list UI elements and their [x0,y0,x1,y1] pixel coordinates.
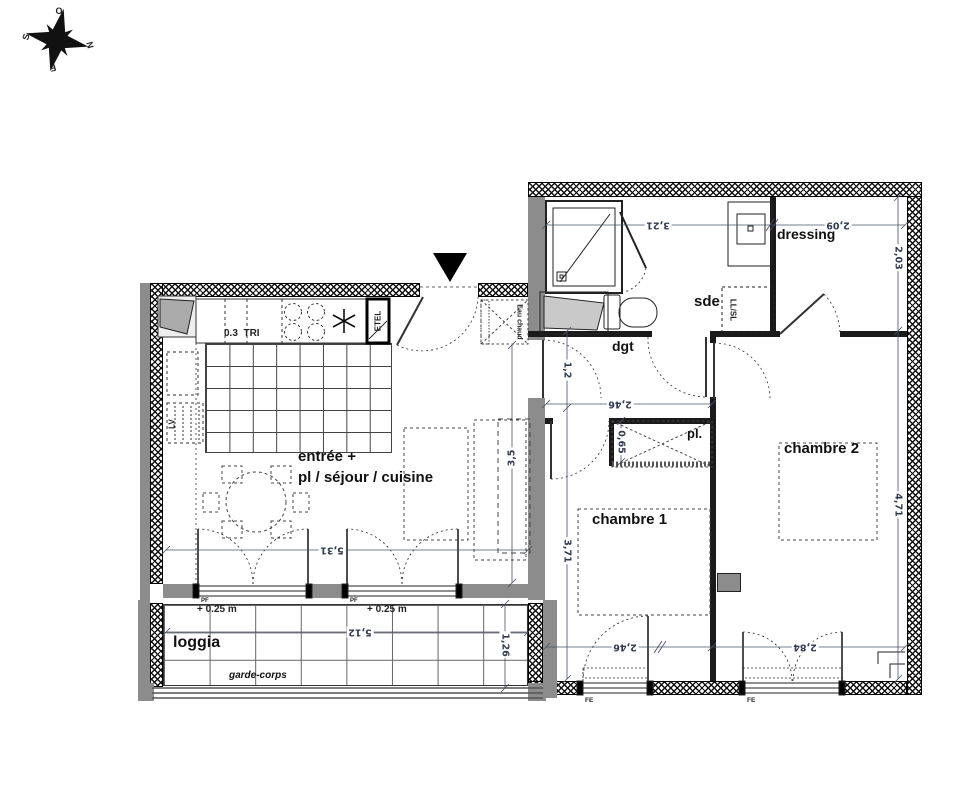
sofa-reservations [404,419,530,560]
label-pf1: PF [201,598,209,604]
dim-loggia-depth: 1,26 [500,631,511,658]
label-garde-corps: garde-corps [229,670,287,681]
kitchen-fixtures [158,296,390,584]
room-label-chambre2: chambre 2 [784,440,859,457]
label-level-b: + 0.25 m [367,604,407,615]
dim-chambre1-width: 2,46 [611,642,638,653]
dim-dgt-width: 1,2 [562,360,573,381]
dim-placard-depth: 0,65 [616,428,627,455]
dim-loggia-width: 5,12 [346,627,373,638]
label-level-a: + 0.25 m [197,604,237,615]
dim-chambre1-depth: 3,71 [562,537,573,564]
corner-step-detail [878,652,905,678]
dim-sejour-width: 5,31 [318,545,345,556]
label-fe1: FE [585,697,593,704]
dim-chambre2-depth: 4,71 [893,491,904,518]
label-lv: LV [168,419,177,429]
tri-text: TRI [243,328,259,339]
dim-chambre2-width: 2,84 [791,642,818,653]
label-tri: 0.3 TRI [224,328,260,339]
entree-line1: entrée + [298,446,433,467]
dim-sde-width: 3,21 [644,220,671,231]
room-label-sde: sde [694,293,720,310]
label-etel: ETEL [374,311,383,331]
windows [193,529,845,695]
garde-corps-railing [152,688,543,698]
label-eau-chaude: Eau chaud [516,304,523,339]
room-label-loggia: loggia [173,634,220,652]
entrance-arrow-icon [433,253,467,282]
dim-dressing-width: 2,09 [824,220,851,231]
dim-sejour-depth: 3,5 [507,448,518,469]
room-label-entree: entrée + pl / séjour / cuisine [298,446,433,488]
plan-geometry [0,0,980,800]
compass-west: O [55,6,62,16]
dining-table [203,466,309,538]
tri-value: 0.3 [224,328,238,339]
room-label-chambre1: chambre 1 [592,511,667,528]
label-llsl: LL/SL [729,299,738,321]
entree-line2: pl / séjour / cuisine [298,467,433,488]
label-pf2: PF [350,598,358,604]
dim-dressing-depth: 2,03 [893,244,904,271]
bed-reservations [578,443,877,615]
dim-chambre1-width-top: 2,46 [606,399,633,410]
room-label-placard: pl. [687,426,702,441]
label-fe2: FE [747,697,755,704]
floor-plan: O N S E entrée + pl / séjour / cuisine c… [0,0,980,800]
room-label-dgt: dgt [612,338,634,354]
